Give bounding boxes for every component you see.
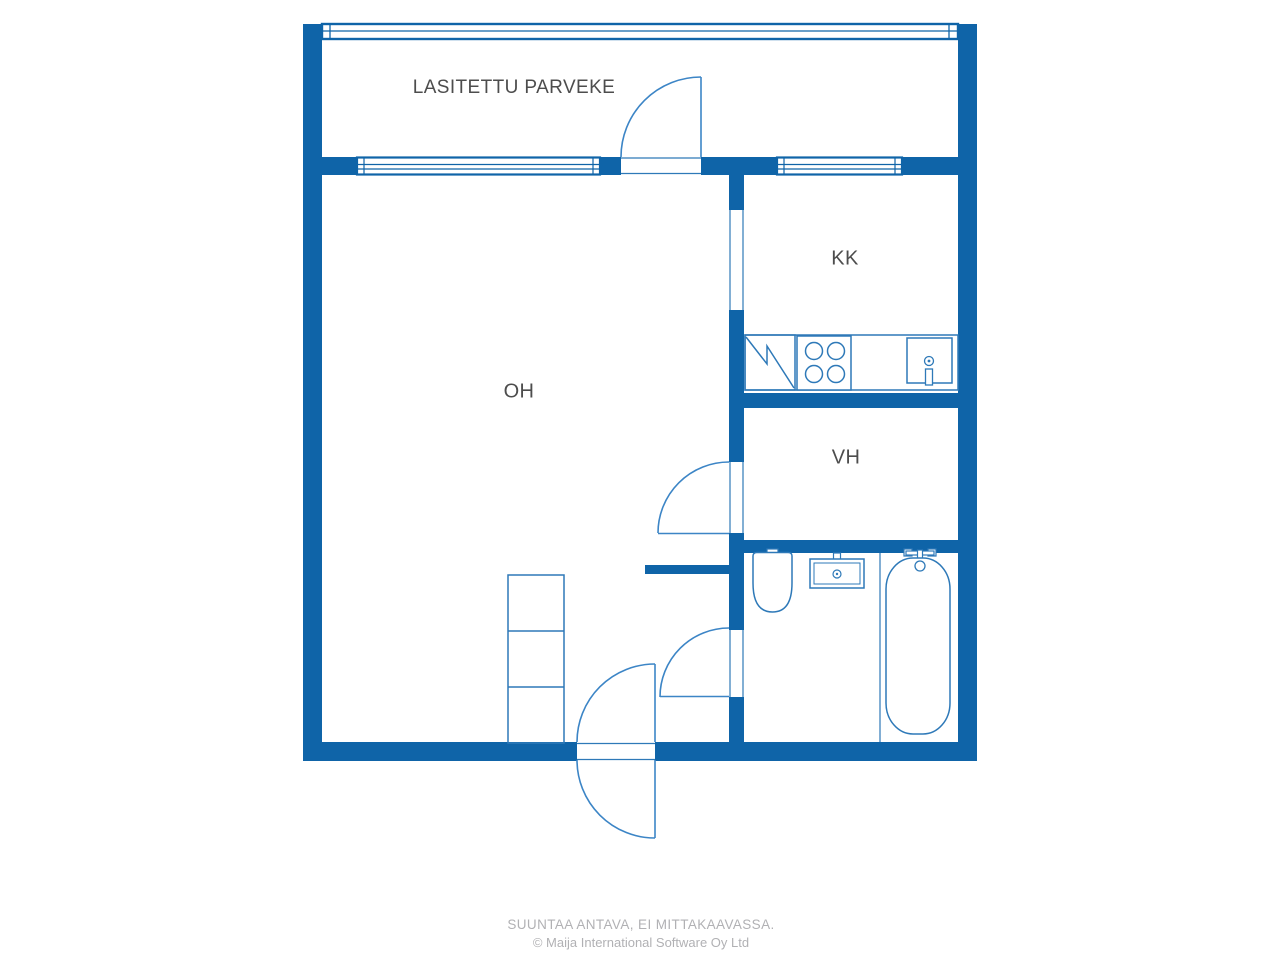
entrance-door-opening xyxy=(577,741,655,762)
balcony-wall-seg3 xyxy=(701,157,777,175)
core-wall-seg1 xyxy=(729,175,744,210)
kitchenette-label: KK xyxy=(831,248,858,271)
footer-copyright: © Maija International Software Oy Ltd xyxy=(507,935,774,950)
bathroom-fixtures xyxy=(753,549,950,742)
bathtub-icon xyxy=(886,549,950,734)
wall-left xyxy=(303,24,322,761)
kitchenette-opening xyxy=(728,210,745,310)
kitchen-fixtures xyxy=(745,335,958,390)
living-room-label: OH xyxy=(504,381,535,404)
exterior-walls xyxy=(303,24,977,761)
doors xyxy=(577,77,729,838)
stove-icon xyxy=(797,336,851,390)
washbasin-icon xyxy=(810,553,864,588)
entrance-door-outer-swing xyxy=(577,760,655,838)
living-room-window xyxy=(357,158,600,175)
bathroom-door-opening xyxy=(728,630,745,697)
wall-bottom-right xyxy=(655,742,977,761)
door-openings xyxy=(577,156,745,762)
footer-disclaimer: SUUNTAA ANTAVA, EI MITTAKAAVASSA. xyxy=(507,917,774,932)
windows xyxy=(322,24,958,175)
bathroom-door xyxy=(660,628,729,697)
balcony-door xyxy=(621,77,701,157)
wardrobe-icon xyxy=(508,575,564,743)
floorplan-page: LASITETTU PARVEKE OH KK VH SUUNTAA ANTAV… xyxy=(0,0,1280,960)
balcony-wall-seg1 xyxy=(322,157,357,175)
living-room-fixtures xyxy=(508,575,564,743)
toilet-icon xyxy=(753,549,792,612)
sink-icon xyxy=(907,338,952,385)
balcony-label: LASITETTU PARVEKE xyxy=(413,77,616,99)
closet-top-wall xyxy=(729,393,958,408)
balcony-glazing-window xyxy=(322,24,958,39)
core-wall-seg2 xyxy=(729,310,744,462)
kitchenette-window xyxy=(777,158,902,175)
core-wall-seg4 xyxy=(729,697,744,742)
closet-door xyxy=(658,462,729,534)
closet-door-opening xyxy=(728,462,745,533)
wall-right xyxy=(958,24,977,761)
balcony-wall-seg4 xyxy=(902,157,958,175)
footer: SUUNTAA ANTAVA, EI MITTAKAAVASSA. © Maij… xyxy=(507,917,774,950)
closet-label: VH xyxy=(832,447,861,470)
fridge-icon xyxy=(745,335,795,390)
hall-stub-wall xyxy=(645,565,732,574)
balcony-wall-seg2 xyxy=(600,157,621,175)
wall-bottom-left xyxy=(303,742,577,761)
floorplan-drawing xyxy=(0,0,1280,960)
entrance-door-inner-swing xyxy=(577,664,655,742)
balcony-door-opening xyxy=(621,156,701,176)
